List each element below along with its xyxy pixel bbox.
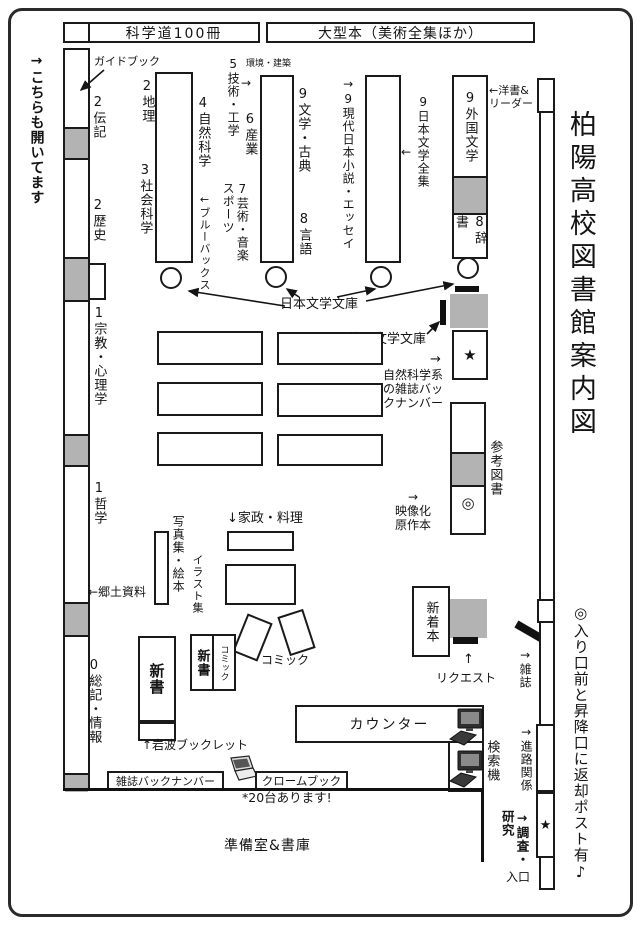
shelf-label-history: 2歴史: [90, 198, 105, 242]
reading-table: [157, 382, 263, 416]
request-label: リクエスト: [436, 671, 496, 685]
shelf-label-religion-psychology: 1宗教・心理学: [91, 306, 106, 406]
shelf-label-local-materials: ←郷土資料: [88, 585, 146, 599]
bottom-wall: [63, 788, 484, 791]
shelf-label-modern-jp-novels: →9現代日本小説・エッセイ: [341, 77, 355, 250]
also-open-note: →こちらも開いてます: [28, 53, 45, 205]
new-arrivals-gray: [450, 599, 487, 638]
shelf-label-blue-backs: ←ブルーバックス: [197, 193, 210, 291]
shelf-label-natural-science: 4自然科学: [195, 96, 210, 168]
reading-table: [277, 434, 383, 466]
left-wall-gray-4: [65, 602, 88, 637]
shelf-label-social-science: 3社会科学: [137, 163, 152, 235]
shelf-label-geography: 2地理: [139, 79, 154, 123]
left-wall-gray-2: [65, 257, 88, 302]
left-wall-gray-3: [65, 434, 88, 467]
shelf-label-philosophy: 1哲学: [91, 481, 106, 525]
stack-literature-language: [365, 75, 401, 263]
technology-arrow: →: [241, 76, 251, 90]
reading-table: [277, 332, 383, 365]
new-arrivals-bar: [453, 637, 478, 644]
dictionaries-label: 8辞書: [451, 215, 489, 257]
computer-icon: [448, 750, 484, 790]
shelf-label-language: 8言語: [296, 212, 311, 256]
home-economics-label: ↓家政・料理: [227, 511, 303, 526]
career-label: →進路関係: [519, 725, 533, 792]
display-gray-box: [450, 294, 488, 328]
stack-foreign-literature: 9外国文学: [452, 75, 488, 178]
comics-label: コミック: [261, 653, 309, 667]
top-shelf-large-books: 大型本（美術全集ほか）: [266, 22, 535, 43]
shelf-label-jp-literature-complete: 9日本文学全集: [416, 95, 430, 188]
jp-literature-arrow: ←: [401, 145, 411, 159]
shelf-label-biography: 2伝記: [90, 95, 105, 139]
home-economics-table-1: [227, 531, 294, 551]
top-shelf-empty: [63, 22, 90, 43]
top-shelf-science100: 科学道100冊: [88, 22, 260, 43]
career-shelf: [536, 724, 555, 792]
reading-table: [277, 383, 383, 417]
research-shelf: ★: [536, 792, 555, 858]
science-magazine-arrow: →: [430, 352, 441, 367]
stack-geography-social: [155, 72, 193, 263]
shelf-label-technology: 5技術・工学: [226, 57, 240, 137]
star-icon: ★: [463, 346, 476, 364]
return-post-note: ◎入り口前と昇降口に返却ポスト有♪: [571, 604, 589, 882]
illustrations-label: イラスト集: [190, 554, 203, 614]
chromebook-count-note: *20台あります!: [242, 791, 332, 806]
request-arrow: ↑: [463, 652, 474, 667]
computer-icon: [448, 708, 484, 748]
counter-label: カウンター: [350, 714, 430, 734]
new-arrivals-label: 新着本: [422, 601, 441, 643]
paperback-carousel-1: [160, 267, 182, 289]
shelf-label-literature-classics: 9文学・古典: [295, 87, 310, 173]
shinsho-label: 新書: [147, 663, 168, 695]
research-label: →調査・ 研究: [499, 810, 529, 867]
star-icon: ★: [540, 818, 552, 833]
shelf-label-arts-music-sports: 7芸術・音楽 スポーツ: [221, 182, 249, 262]
right-wall-mid-shelf: [537, 599, 555, 623]
foreign-bunko-stand: [440, 300, 446, 325]
reading-table: [157, 331, 263, 365]
photo-books-label: 写真集・絵本: [171, 515, 185, 593]
new-arrivals-shelf: 新着本: [412, 586, 450, 657]
paperback-carousel-4: [457, 257, 479, 279]
reading-table: [157, 432, 263, 466]
home-economics-table-2: [225, 564, 296, 605]
reference-gray: [452, 452, 484, 487]
shinsho-col-label: 新書: [193, 649, 212, 677]
shinsho-comic-shelf: 新書 コミック: [190, 634, 236, 691]
western-books-label: ←洋書& リーダー: [489, 85, 533, 111]
chromebook-label: クロームブック: [262, 773, 341, 789]
double-circle-icon: ◎: [452, 494, 484, 512]
science100-label: 科学道100冊: [126, 23, 223, 43]
guidebook-label: ガイドブック: [94, 56, 160, 69]
photo-books-shelf: [154, 531, 169, 605]
library-map-page: 科学道100冊 大型本（美術全集ほか） ガイドブック 2伝記 2歴史 1宗教・心…: [0, 0, 641, 925]
prep-room-label: 準備室&書庫: [224, 838, 311, 855]
display-top-bar: [455, 286, 479, 292]
stack-foreign-gray: [452, 178, 488, 213]
magazines-label: →雑誌: [518, 648, 532, 689]
large-books-label: 大型本（美術全集ほか）: [318, 23, 483, 43]
paperback-carousel-2: [265, 266, 287, 288]
shelf-label-industry: 6産業: [242, 112, 257, 156]
science-magazine-label: 自然科学系 の雑誌バッ クナンバー: [383, 368, 443, 410]
foreign-literature-label: 9外国文学: [461, 91, 480, 163]
reference-shelf: ◎: [450, 402, 486, 535]
film-adaptations-label: → 映像化 原作本: [395, 490, 431, 532]
shelf-label-general-works: 0総記・情報: [86, 658, 101, 744]
prep-room-wall: [481, 788, 484, 862]
left-wall-gray-1: [65, 127, 88, 160]
reference-label: 参考図書: [487, 440, 502, 496]
comic-col-label: コミック: [218, 645, 231, 681]
stack-tech-industry-arts: [260, 75, 294, 263]
left-wall-jut-shelf: [88, 263, 106, 300]
entrance-label: 入口: [506, 870, 530, 884]
shinsho-shelf: 新書: [138, 636, 176, 722]
laptop-icon: [226, 755, 258, 785]
magazine-backnumber-label: 雑誌バックナンバー: [116, 773, 215, 789]
search-machines-label: 検索機: [484, 740, 499, 782]
stack-dictionaries: 8辞書: [452, 213, 488, 259]
right-wall-top-shelf: [537, 78, 555, 113]
page-title: 柏陽高校図書館案内図: [564, 110, 596, 440]
technology-note: 環境・建築: [246, 59, 291, 70]
iwanami-label: ↑岩波ブックレット: [142, 738, 248, 752]
paperback-carousel-3: [370, 266, 392, 288]
science-magazine-box: ★: [452, 330, 488, 380]
jp-bunko-label: 日本文学文庫: [280, 297, 358, 312]
